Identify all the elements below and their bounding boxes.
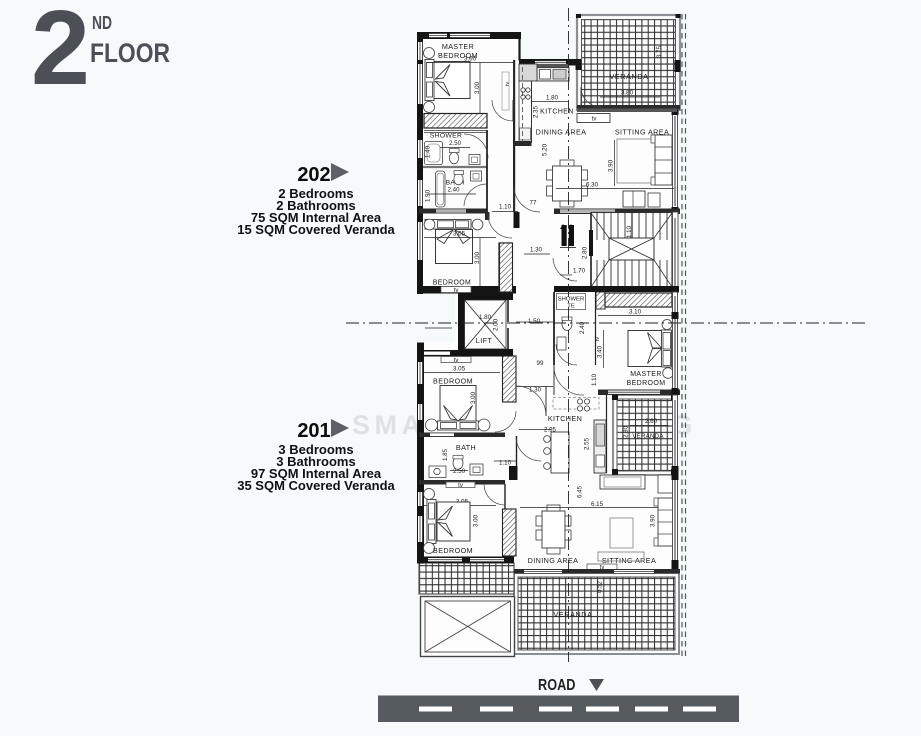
svg-text:BEDROOM: BEDROOM [627,380,666,387]
svg-text:201: 201 [297,420,330,442]
svg-text:VERANDA: VERANDA [632,433,664,440]
svg-text:tv: tv [592,117,597,123]
svg-text:tv: tv [458,483,463,489]
svg-text:LIFT: LIFT [476,336,493,345]
svg-text:6.45: 6.45 [577,485,584,498]
svg-text:1.70: 1.70 [573,268,586,275]
svg-text:2.80: 2.80 [623,425,630,438]
svg-text:6.30: 6.30 [586,182,599,189]
svg-text:2.40: 2.40 [447,187,460,194]
svg-text:1.10: 1.10 [499,460,512,467]
svg-text:ND: ND [92,13,112,33]
svg-text:0.52: 0.52 [598,581,604,593]
svg-text:99: 99 [537,360,544,367]
svg-text:35 SQM Covered Veranda: 35 SQM Covered Veranda [237,478,395,493]
svg-text:1.10: 1.10 [591,373,598,386]
svg-text:3.75: 3.75 [656,45,663,58]
svg-text:3.60: 3.60 [464,56,477,63]
svg-text:DINING AREA: DINING AREA [528,556,579,565]
svg-text:1.30: 1.30 [530,247,543,254]
svg-text:SHOWER: SHOWER [558,297,585,303]
svg-text:3.90: 3.90 [650,514,657,527]
svg-text:1.40: 1.40 [425,145,432,158]
svg-text:2.60: 2.60 [645,418,658,425]
svg-text:3.05: 3.05 [453,366,466,373]
svg-text:5.20: 5.20 [542,143,549,156]
svg-text:3.80: 3.80 [621,90,634,97]
svg-text:VERANDA: VERANDA [610,72,649,81]
svg-text:1.85: 1.85 [442,448,449,461]
svg-text:BEDROOM: BEDROOM [433,280,471,287]
svg-text:2.80: 2.80 [582,246,589,259]
svg-text:1.10: 1.10 [626,225,633,238]
svg-text:KITCHEN: KITCHEN [540,109,574,116]
svg-text:1.50: 1.50 [528,318,541,325]
svg-text:ROAD: ROAD [538,677,576,694]
svg-text:MASTER: MASTER [630,371,662,378]
svg-text:SITTING AREA: SITTING AREA [615,128,669,137]
svg-text:6.15: 6.15 [591,501,604,508]
svg-text:1.10: 1.10 [499,204,512,211]
svg-text:tv: tv [454,288,459,294]
svg-text:tv: tv [505,82,511,87]
svg-text:2.35: 2.35 [533,105,540,118]
svg-text:77: 77 [530,200,537,207]
svg-text:BATH: BATH [456,443,476,452]
svg-text:FLOOR: FLOOR [90,38,170,68]
svg-text:3.40: 3.40 [597,345,604,358]
svg-text:BEDROOM: BEDROOM [433,546,473,555]
svg-text:1.80: 1.80 [479,314,492,321]
svg-text:3.00: 3.00 [473,514,480,527]
svg-text:2.00: 2.00 [493,318,500,331]
svg-text:KITCHEN: KITCHEN [548,414,582,423]
svg-text:3.05: 3.05 [453,231,466,238]
svg-text:BEDROOM: BEDROOM [433,377,473,386]
svg-text:3.00: 3.00 [470,391,477,404]
svg-text:tv: tv [595,337,601,342]
svg-text:3.00: 3.00 [474,81,481,94]
svg-text:2.55: 2.55 [584,437,591,450]
svg-text:tv: tv [454,358,459,364]
svg-text:3.00: 3.00 [474,251,481,264]
svg-text:2.50: 2.50 [453,468,466,475]
svg-text:VERANDA: VERANDA [554,610,593,619]
svg-text:MASTER: MASTER [442,42,474,51]
svg-text:2: 2 [31,0,90,107]
svg-text:3.90: 3.90 [608,159,615,172]
svg-text:3.10: 3.10 [629,309,642,316]
svg-text:DINING AREA: DINING AREA [536,128,587,137]
svg-text:202: 202 [297,164,330,186]
svg-text:15 SQM Covered Veranda: 15 SQM Covered Veranda [237,222,395,237]
svg-text:2.50: 2.50 [449,140,462,147]
svg-text:1.90: 1.90 [425,189,432,202]
svg-text:SHOWER: SHOWER [430,133,462,140]
svg-text:1.80: 1.80 [546,95,559,102]
